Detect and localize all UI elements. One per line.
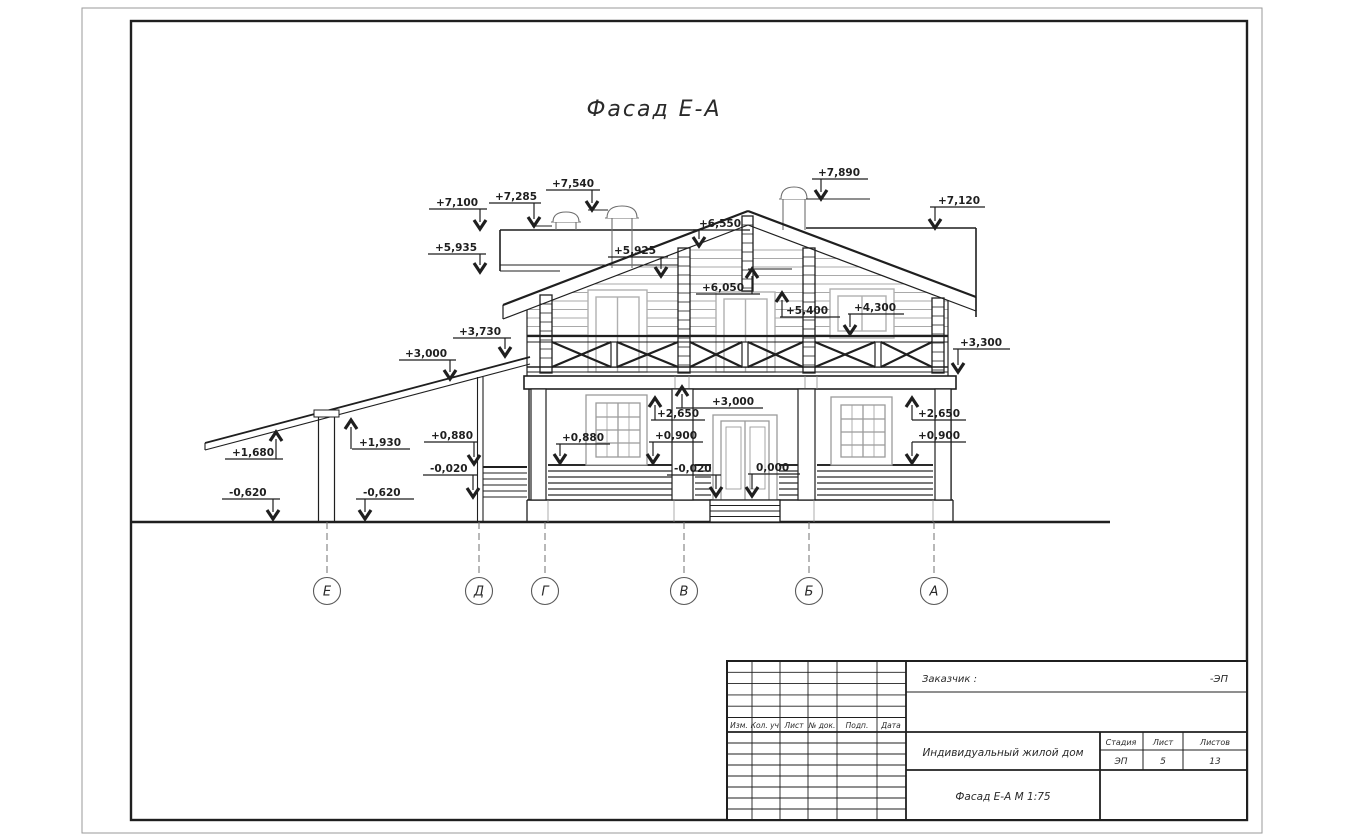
level-mark-label: +3,000 <box>712 396 754 408</box>
level-mark-label: +3,300 <box>960 337 1002 349</box>
drawing-sheet-viewer: Фасад Е-А ЕДГВБА <box>0 0 1350 840</box>
pergola-post-cap <box>314 410 339 417</box>
facade-elevation-drawing: Фасад Е-А ЕДГВБА <box>0 0 1350 840</box>
level-mark-label: -0,620 <box>363 487 401 499</box>
entrance-door <box>713 415 777 500</box>
level-mark-label: +6,550 <box>699 218 741 230</box>
window-1f-left <box>586 395 647 465</box>
sheets-label: Листов <box>1199 738 1230 747</box>
axis-letter: В <box>680 585 689 600</box>
level-mark-label: +1,680 <box>232 447 274 459</box>
level-mark-label: +7,890 <box>818 167 860 179</box>
stage-value: ЭП <box>1113 757 1127 767</box>
level-mark-label: +6,050 <box>702 282 744 294</box>
level-mark-label: +7,285 <box>495 191 537 203</box>
object-name: Индивидуальный жилой дом <box>922 747 1083 759</box>
axis-letter: Д <box>473 585 484 600</box>
axis-letter: А <box>929 585 939 600</box>
level-mark-label: +2,650 <box>657 408 699 420</box>
rev-col-kol: Кол. уч. <box>751 721 782 730</box>
title-block: Изм. Кол. уч. Лист № док. Подп. Дата Зак… <box>727 661 1247 820</box>
log-post <box>540 295 552 373</box>
stage-label: Стадия <box>1106 738 1137 747</box>
window-1f-right <box>831 397 892 465</box>
level-mark-label: +1,930 <box>359 437 401 449</box>
level-mark-label: +7,100 <box>436 197 478 209</box>
level-mark-label: +5,400 <box>786 305 828 317</box>
level-mark-label: +0,880 <box>431 430 473 442</box>
rev-col-izm: Изм. <box>730 721 748 730</box>
project-code: -ЭП <box>1210 674 1229 685</box>
rev-col-doc: № док. <box>808 721 836 730</box>
level-mark-label: +0,900 <box>918 430 960 442</box>
level-mark-label: 0,000 <box>756 462 789 474</box>
drawing-name: Фасад Е-А М 1:75 <box>955 791 1051 803</box>
level-mark-label: +3,730 <box>459 326 501 338</box>
axis-letter: Б <box>805 585 814 600</box>
log-post <box>678 248 690 373</box>
level-mark-label: -0,020 <box>674 463 712 475</box>
entrance-steps <box>710 500 780 522</box>
level-mark-label: +5,935 <box>435 242 477 254</box>
sheets-value: 13 <box>1209 757 1221 767</box>
sheet-value: 5 <box>1160 757 1166 767</box>
drawing-title: Фасад Е-А <box>586 97 721 122</box>
level-mark-label: +7,120 <box>938 195 980 207</box>
level-mark-label: +7,540 <box>552 178 594 190</box>
level-mark-label: -0,020 <box>430 463 468 475</box>
rev-col-podp: Подп. <box>846 721 869 730</box>
level-mark-label: -0,620 <box>229 487 267 499</box>
level-mark-label: +0,900 <box>655 430 697 442</box>
level-mark-label: +5,925 <box>614 245 656 257</box>
rev-col-data: Дата <box>880 721 901 730</box>
level-mark-label: +0,880 <box>562 432 604 444</box>
axis-letter: Е <box>323 585 332 600</box>
balcony-floor-band <box>524 376 956 389</box>
sheet-label: Лист <box>1152 738 1174 747</box>
level-mark-label: +3,000 <box>405 348 447 360</box>
level-mark-label: +2,650 <box>918 408 960 420</box>
rev-col-list: Лист <box>783 721 804 730</box>
level-mark-label: +4,300 <box>854 302 896 314</box>
customer-label: Заказчик : <box>922 674 977 685</box>
